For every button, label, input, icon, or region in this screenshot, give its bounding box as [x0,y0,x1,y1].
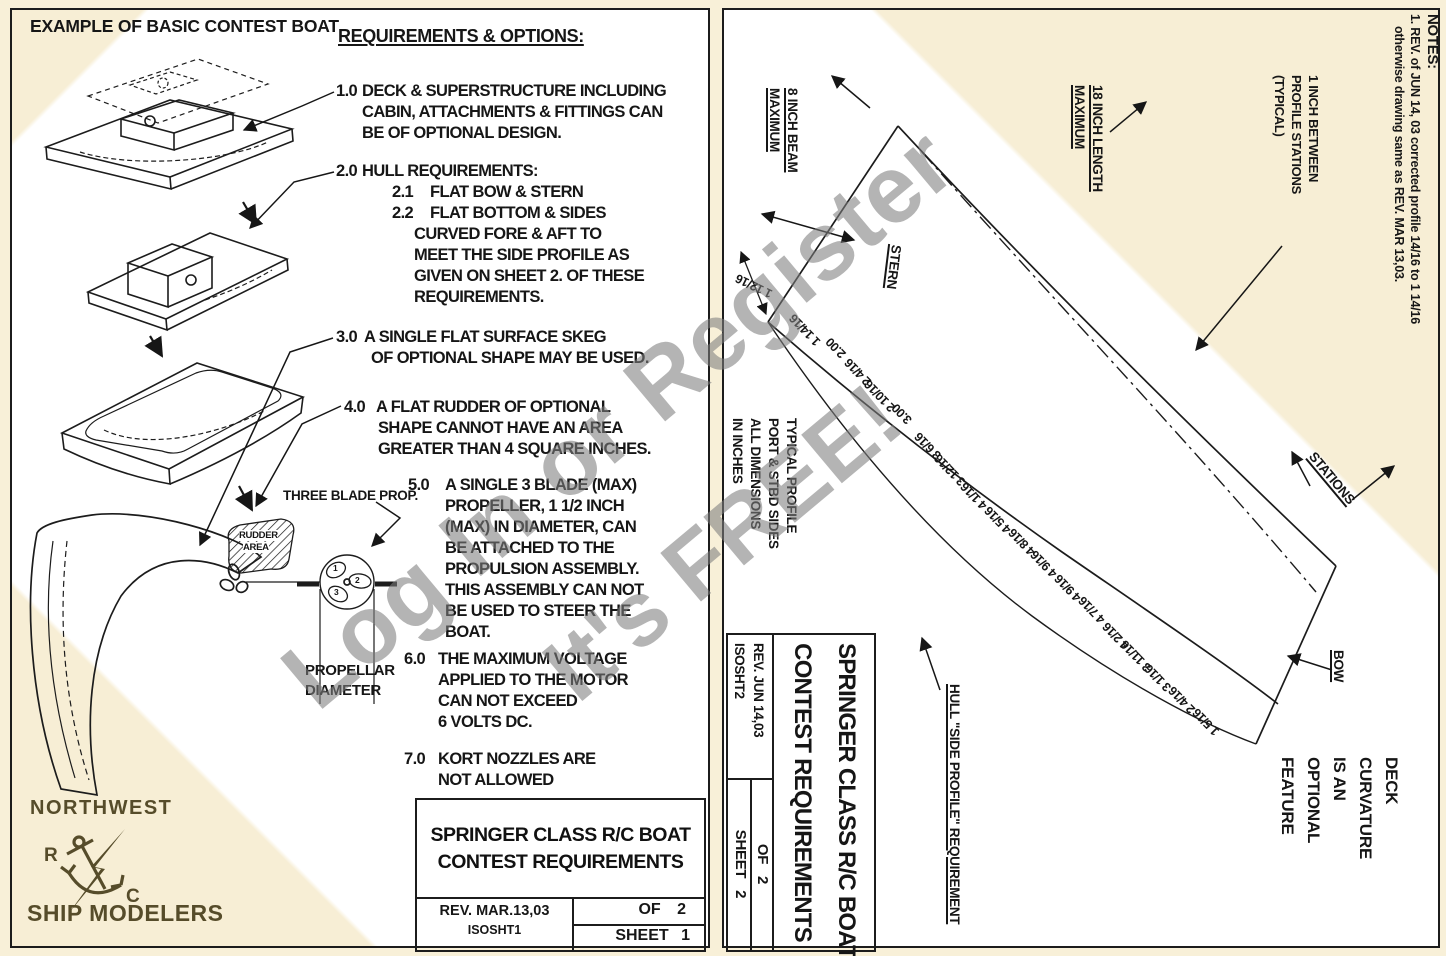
rudder-area-label2: AREA [243,542,269,553]
blade-number-1: 1 [333,563,337,573]
title-line1: SPRINGER CLASS R/C BOAT [430,822,690,849]
title-block-sheet2: REV. JUN 14,03 ISOSHT2 SPRINGER CLASS R/… [726,633,876,952]
requirement-line: THIS ASSEMBLY CAN NOT [445,581,644,600]
title-block-sheet1: SPRINGER CLASS R/C BOAT CONTEST REQUIREM… [415,798,706,952]
requirement-line: CURVED FORE & AFT TO [414,225,602,244]
requirement-line: PROPELLER, 1 1/2 INCH [445,497,624,516]
hull-midsection-drawing [88,233,288,330]
requirement-line: GREATER THAN 4 SQUARE INCHES. [378,440,651,459]
requirement-number: 7.0 [404,750,425,769]
sheet-number: SHEET 1 [574,927,702,945]
requirement-line: NOT ALLOWED [438,771,554,790]
title-block-title: SPRINGER CLASS R/C BOAT CONTEST REQUIREM… [417,800,704,897]
inch-between-stations-label: 1 INCH BETWEEN PROFILE STATIONS (TYPICAL… [1271,75,1322,194]
requirement-line: A SINGLE FLAT SURFACE SKEG [364,328,606,347]
requirement-line: A FLAT RUDDER OF OPTIONAL [376,398,610,417]
requirement-line: FLAT BOTTOM & SIDES [430,204,606,223]
requirement-line: 6 VOLTS DC. [438,713,532,732]
revision-text: REV. MAR.13,03 [417,903,572,919]
beam-maximum-label: 8 INCH BEAM MAXIMUM [765,88,801,172]
hull-tub-drawing [62,363,303,484]
title-line2: CONTEST REQUIREMENTS [780,643,824,942]
title-block-divider2 [572,924,704,926]
requirement-line: CAN NOT EXCEED [438,692,577,711]
rudder-area-label: RUDDER [239,530,278,541]
requirement-line: HULL REQUIREMENTS: [362,162,538,181]
notes-heading: NOTES: [1423,14,1441,324]
three-blade-prop-label: THREE BLADE PROP. [283,488,418,503]
example-title: EXAMPLE OF BASIC CONTEST BOAT [30,16,339,37]
anchor-lightning-icon [55,829,147,915]
typical-profile-label: TYPICAL PROFILE PORT & STBD SIDES ALL DI… [728,418,800,549]
requirement-number: 1.0 [336,82,357,101]
notes-block: NOTES: 1. REV. of JUN 14, 03 corrected p… [1391,14,1441,324]
of-count: OF 2 [574,901,702,919]
requirement-line: BOAT. [445,623,490,642]
length-maximum-label: 18 INCH LENGTH MAXIMUM [1070,85,1106,192]
propellar-diameter-label2: DIAMETER [305,682,381,699]
of-count: OF 2 [754,778,771,950]
propellar-diameter-label: PROPELLAR [305,662,395,679]
notes-line2: otherwise drawing same as REV. MAR 13,03… [1391,14,1407,324]
hull-side-profile-drawing [31,514,397,795]
requirement-number: 3.0 [336,328,357,347]
logo-line1: NORTHWEST [30,797,172,820]
requirement-number: 2.2 [392,204,413,223]
requirements-heading: REQUIREMENTS & OPTIONS: [338,26,584,47]
title-block-divider-v [772,635,774,950]
requirement-line: DECK & SUPERSTRUCTURE INCLUDING [362,82,666,101]
requirement-line: BE OF OPTIONAL DESIGN. [362,124,561,143]
requirement-line: FLAT BOW & STERN [430,183,583,202]
requirement-line: SHAPE CANNOT HAVE AN AREA [378,419,623,438]
bow-label: BOW [1329,650,1347,682]
requirement-line: MEET THE SIDE PROFILE AS [414,246,629,265]
requirement-line: APPLIED TO THE MOTOR [438,671,628,690]
requirement-line: REQUIREMENTS. [414,288,544,307]
deck-curvature-label: DECK CURVATURE IS AN OPTIONAL FEATURE [1274,757,1404,859]
title-line2: CONTEST REQUIREMENTS [438,849,684,876]
requirement-number: 2.1 [392,183,413,202]
deck-superstructure-drawing [46,59,293,189]
title-block-divider [417,897,704,899]
title-block-divider-v2 [750,778,752,950]
notes-line1: 1. REV. of JUN 14, 03 corrected profile … [1407,14,1423,324]
requirement-line: OF OPTIONAL SHAPE MAY BE USED. [371,349,649,368]
drawing-code: ISOSHT1 [417,923,572,937]
revision-text: REV. JUN 14,03 ISOSHT2 [730,643,768,737]
requirement-number: 2.0 [336,162,357,181]
requirement-line: GIVEN ON SHEET 2. OF THESE [414,267,644,286]
requirement-line: BE USED TO STEER THE [445,602,631,621]
requirement-line: THE MAXIMUM VOLTAGE [438,650,627,669]
requirement-line: PROPULSION ASSEMBLY. [445,560,639,579]
sheet-number: SHEET 2 [732,778,749,950]
requirement-line: (MAX) IN DIAMETER, CAN [445,518,636,537]
requirement-line: BE ATTACHED TO THE [445,539,614,558]
title-line1: SPRINGER CLASS R/C BOAT [824,643,868,942]
blade-number-3: 3 [334,587,338,597]
northwest-rc-ship-modelers-logo: NORTHWEST R C SHIP MODELERS [22,793,252,943]
requirement-line: A SINGLE 3 BLADE (MAX) [445,476,637,495]
requirement-number: 4.0 [344,398,365,417]
requirement-number: 6.0 [404,650,425,669]
scanned-drawing-page: EXAMPLE OF BASIC CONTEST BOAT REQUIREMEN… [0,0,1446,956]
blade-number-2: 2 [355,575,359,585]
title-block-title: SPRINGER CLASS R/C BOAT CONTEST REQUIREM… [780,643,868,942]
hull-side-profile-label: HULL "SIDE PROFILE" REQUIREMENT [945,684,963,924]
requirement-line: KORT NOZZLES ARE [438,750,596,769]
requirement-line: CABIN, ATTACHMENTS & FITTINGS CAN [362,103,663,122]
